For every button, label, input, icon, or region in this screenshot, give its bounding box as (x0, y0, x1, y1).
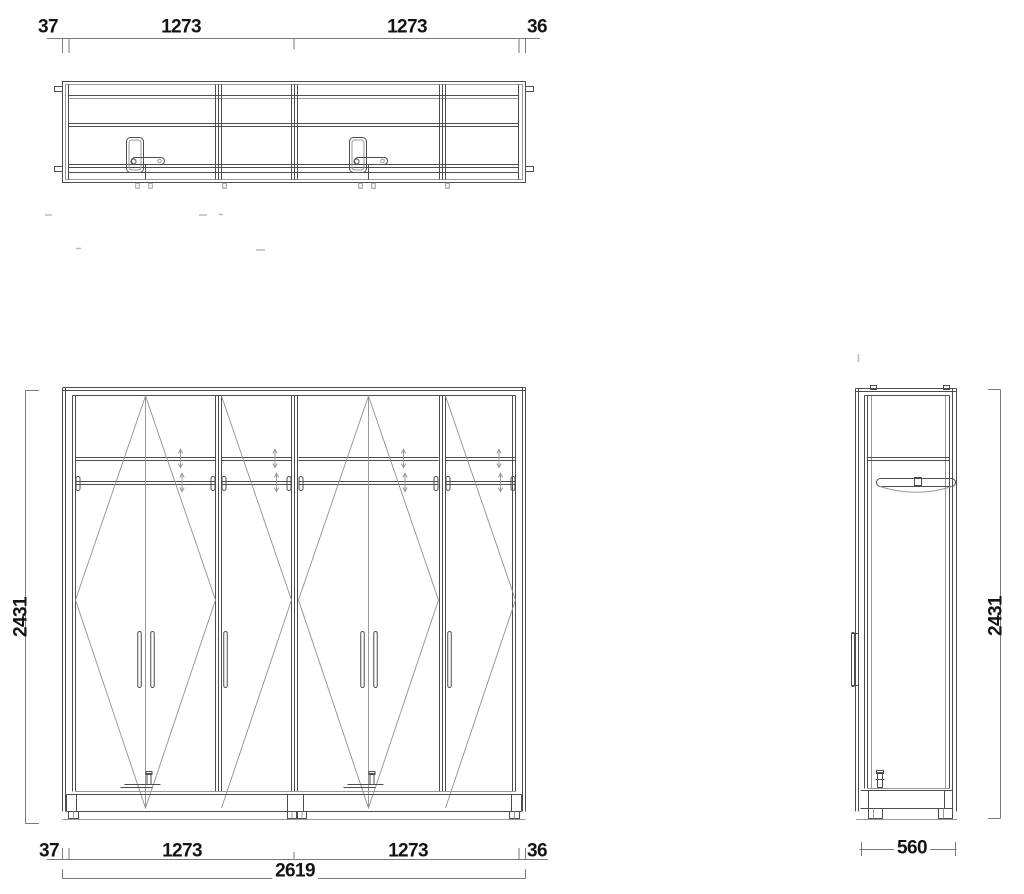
dim-front-overall-width: 2619 (272, 862, 318, 881)
dim-side-depth: 560 (894, 839, 930, 858)
side-elevation (852, 354, 958, 820)
dim-plan-right-wall: 36 (527, 18, 547, 37)
dim-front-height: 2431 (12, 597, 31, 637)
dim-front-right-wall: 36 (527, 842, 547, 861)
dim-plan-left-wall: 37 (38, 18, 58, 37)
technical-drawing-canvas: 37 1273 1273 36 37 1273 1273 36 2619 243… (0, 0, 1024, 894)
dim-side-height: 2431 (987, 596, 1006, 636)
dim-plan-door-left: 1273 (161, 18, 201, 37)
dim-front-left-wall: 37 (39, 842, 59, 861)
plan-view (45, 82, 534, 251)
front-elevation (63, 388, 526, 820)
dim-front-door-left: 1273 (162, 842, 202, 861)
dim-front-door-right: 1273 (388, 842, 428, 861)
drawing-linework (0, 0, 1024, 894)
dim-plan-door-right: 1273 (387, 18, 427, 37)
